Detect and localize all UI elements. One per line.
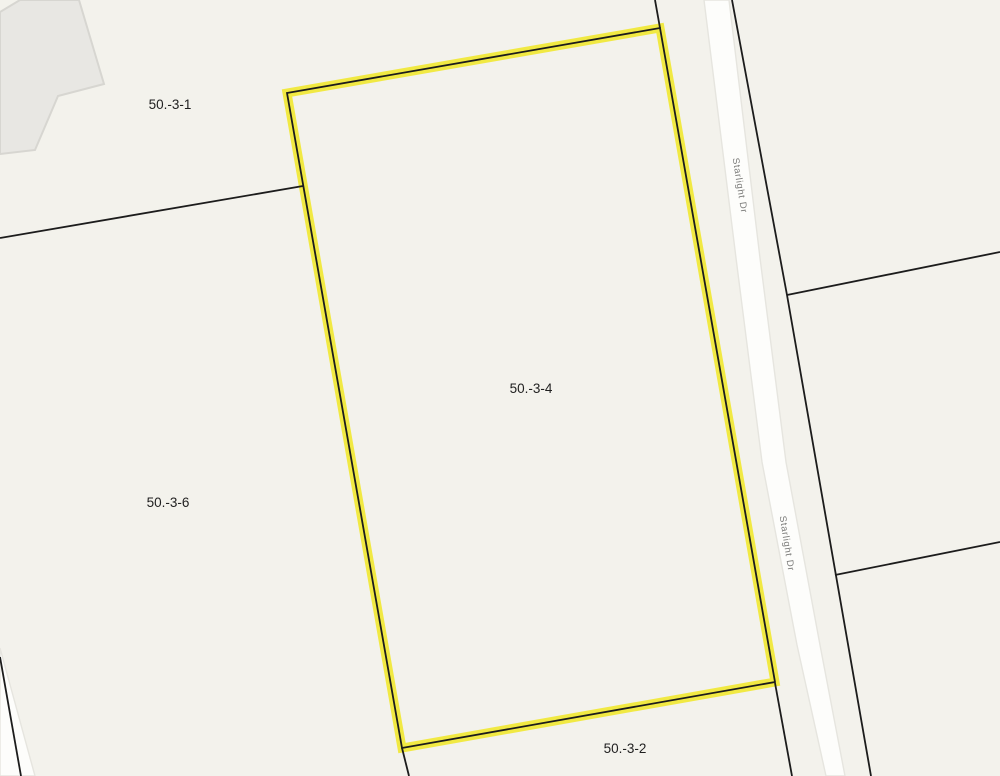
parcel-map-canvas[interactable]: 50.-3-1 50.-3-6 50.-3-4 50.-3-2 Starligh… <box>0 0 1000 776</box>
parcel-label-50-3-6: 50.-3-6 <box>147 495 190 510</box>
parcel-label-50-3-4: 50.-3-4 <box>510 381 553 396</box>
map-viewport: 50.-3-1 50.-3-6 50.-3-4 50.-3-2 Starligh… <box>0 0 1000 776</box>
parcel-label-50-3-2: 50.-3-2 <box>604 741 647 756</box>
parcel-label-50-3-1: 50.-3-1 <box>149 97 192 112</box>
